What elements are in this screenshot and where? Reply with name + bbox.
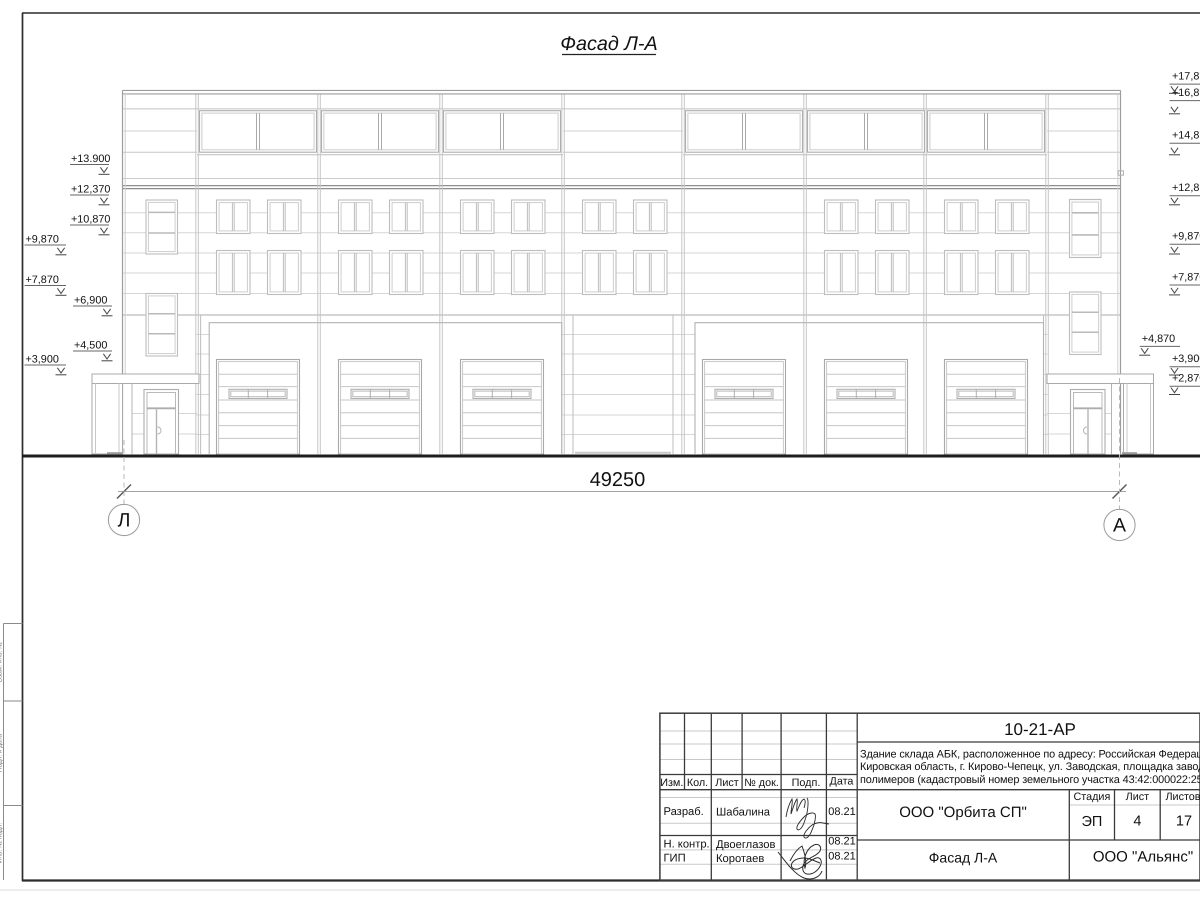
svg-text:+17,870: +17,870 (1172, 71, 1200, 83)
svg-text:+12,370: +12,370 (71, 184, 110, 196)
svg-text:08.21: 08.21 (828, 836, 856, 848)
svg-text:№ док.: № док. (744, 777, 779, 789)
svg-text:Изм.: Изм. (660, 777, 683, 789)
svg-text:Дата: Дата (830, 776, 854, 788)
svg-text:ГИП: ГИП (664, 853, 686, 865)
svg-text:Здание склада АБК, расположенн: Здание склада АБК, расположенное по адре… (860, 749, 1200, 761)
svg-text:Двоеглазов: Двоеглазов (716, 839, 776, 851)
svg-text:Кировская область, г. Кирово-Ч: Кировская область, г. Кирово-Чепецк, ул.… (860, 761, 1200, 773)
svg-text:Листов: Листов (1165, 791, 1200, 803)
svg-text:+10,870: +10,870 (71, 214, 110, 226)
svg-text:+7,870: +7,870 (1172, 271, 1200, 283)
svg-text:Н. контр.: Н. контр. (664, 839, 710, 851)
svg-text:полимеров (кадастровый номер з: полимеров (кадастровый номер земельного … (860, 774, 1200, 786)
svg-text:+3,900: +3,900 (1172, 353, 1200, 365)
svg-text:+9,870: +9,870 (26, 234, 59, 246)
svg-text:Подп.: Подп. (792, 777, 821, 789)
svg-text:Коротаев: Коротаев (716, 853, 764, 865)
svg-text:+4,500: +4,500 (74, 340, 107, 352)
svg-text:А: А (1113, 515, 1126, 537)
svg-text:+4,870: +4,870 (1142, 333, 1175, 345)
svg-text:Фасад Л-А: Фасад Л-А (929, 850, 998, 866)
svg-text:Лист: Лист (715, 777, 739, 789)
svg-text:+16,870: +16,870 (1172, 87, 1200, 99)
svg-text:Инв. № подл.: Инв. № подл. (0, 823, 4, 864)
svg-text:+13.900: +13.900 (71, 153, 110, 165)
svg-text:Разраб.: Разраб. (664, 806, 704, 818)
svg-text:Л: Л (118, 510, 131, 532)
svg-text:+9,870: +9,870 (1172, 231, 1200, 243)
svg-text:4: 4 (1133, 814, 1141, 830)
svg-text:+3,900: +3,900 (26, 354, 59, 366)
svg-text:+7,870: +7,870 (26, 274, 59, 286)
svg-text:Подп. и дата: Подп. и дата (0, 733, 4, 772)
svg-text:Стадия: Стадия (1073, 791, 1110, 803)
svg-text:17: 17 (1176, 814, 1192, 830)
svg-text:ООО "Альянс": ООО "Альянс" (1093, 849, 1193, 866)
svg-text:+6,900: +6,900 (74, 295, 107, 307)
svg-text:08.21: 08.21 (828, 851, 856, 863)
svg-text:ЭП: ЭП (1081, 814, 1102, 830)
svg-text:+2,870: +2,870 (1172, 373, 1200, 385)
svg-text:+14,870: +14,870 (1172, 130, 1200, 142)
svg-text:Шабалина: Шабалина (716, 807, 771, 819)
svg-text:+12,870: +12,870 (1172, 182, 1200, 194)
svg-text:ООО "Орбита СП": ООО "Орбита СП" (899, 804, 1027, 821)
svg-text:Фасад Л-А: Фасад Л-А (560, 33, 657, 55)
svg-text:Лист: Лист (1126, 791, 1150, 803)
svg-text:10-21-АР: 10-21-АР (1004, 720, 1076, 739)
svg-text:49250: 49250 (590, 469, 646, 491)
svg-text:Взам. инв. №: Взам. инв. № (0, 642, 4, 682)
svg-text:08.21: 08.21 (828, 806, 856, 818)
svg-text:Кол.: Кол. (687, 777, 708, 789)
